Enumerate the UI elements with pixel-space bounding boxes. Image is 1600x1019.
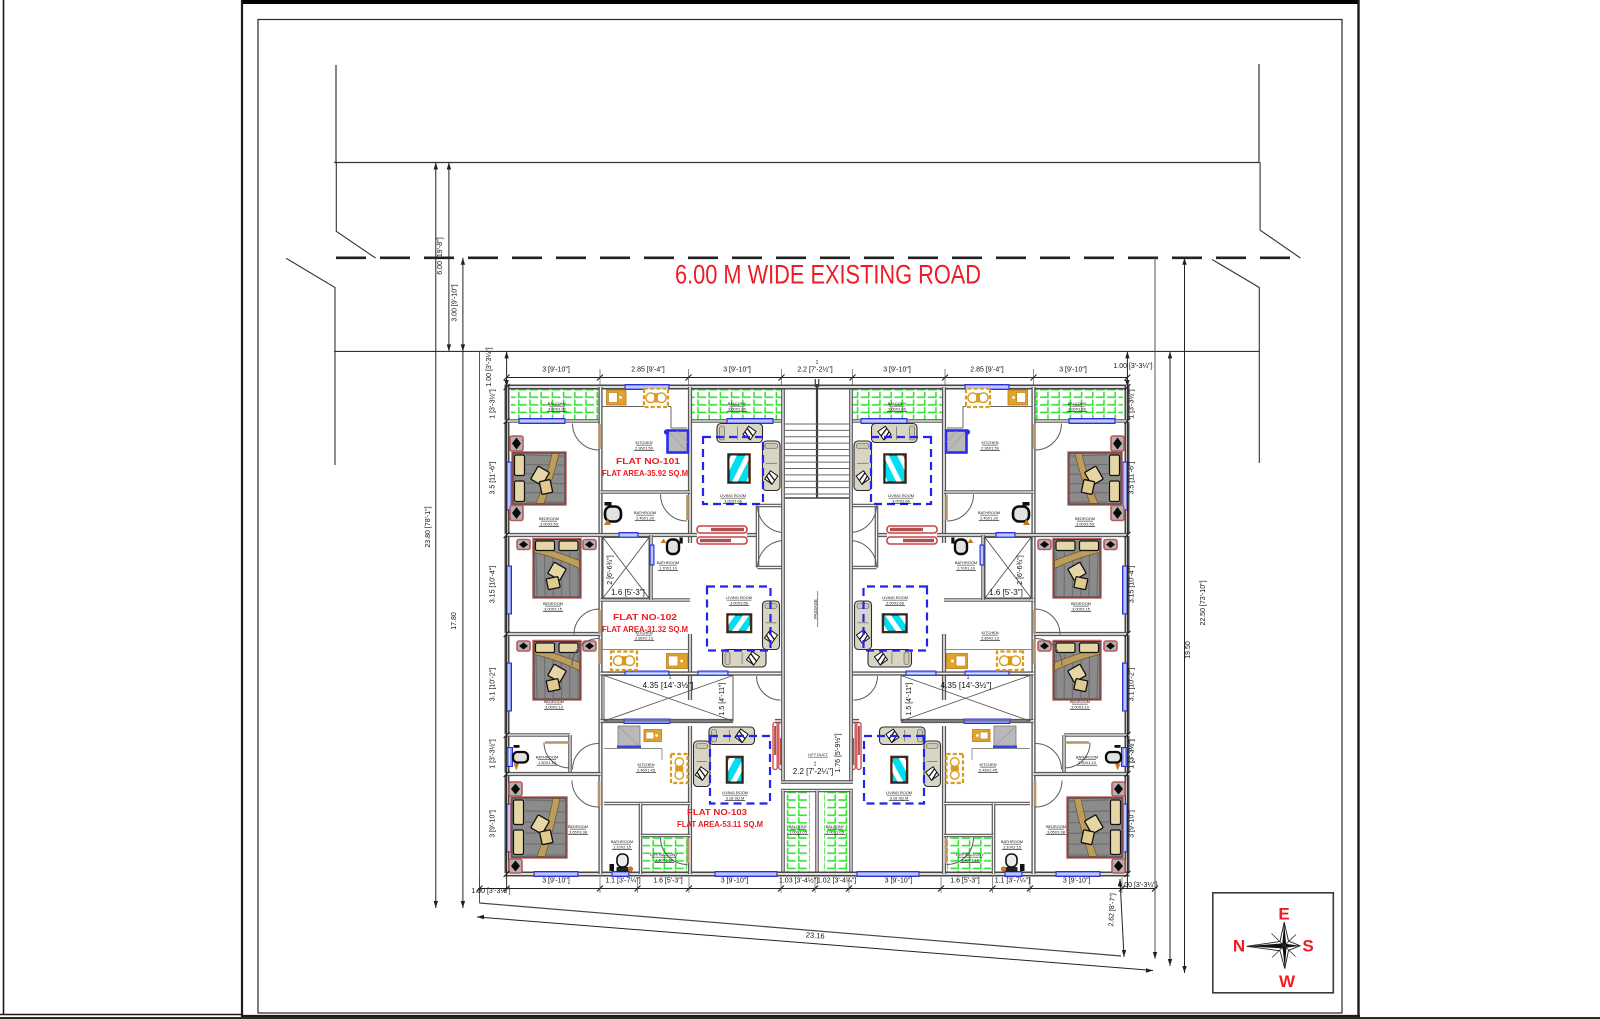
svg-text:BEDROOM: BEDROOM	[1071, 601, 1091, 606]
svg-text:BALCONY: BALCONY	[789, 824, 808, 829]
svg-text:1.76 [5'-9½"]: 1.76 [5'-9½"]	[834, 733, 842, 772]
svg-text:3.00X3.10: 3.00X3.10	[1071, 705, 1090, 710]
svg-text:6.00 [19'-8"]: 6.00 [19'-8"]	[437, 237, 444, 274]
svg-text:2.36X1.50: 2.36X1.50	[635, 446, 654, 451]
svg-text:1.5 [4'-11"]: 1.5 [4'-11"]	[906, 683, 913, 716]
svg-text:1 [3'-3½"]: 1 [3'-3½"]	[489, 739, 497, 769]
svg-text:23.16: 23.16	[805, 930, 824, 940]
svg-text:BATHROOM: BATHROOM	[1001, 839, 1023, 844]
svg-text:23.80 [78'-1"]: 23.80 [78'-1"]	[425, 506, 432, 547]
svg-text:2.86X2.13: 2.86X2.13	[981, 636, 999, 641]
svg-text:1.00X1.05: 1.00X1.05	[826, 830, 844, 835]
svg-text:1: 1	[816, 360, 819, 366]
svg-text:BALCONY: BALCONY	[728, 401, 747, 406]
svg-text:2.86X2.13: 2.86X2.13	[635, 636, 653, 641]
svg-text:3.00X1.00: 3.00X1.00	[548, 407, 567, 412]
svg-text:17.80: 17.80	[451, 612, 458, 630]
svg-text:1.00 [3'-3¼"]: 1.00 [3'-3¼"]	[1113, 363, 1152, 370]
svg-text:KITCHEN: KITCHEN	[981, 440, 998, 445]
svg-text:KITCHEN: KITCHEN	[981, 630, 998, 635]
svg-text:BEDROOM: BEDROOM	[544, 699, 564, 704]
svg-text:DRY BALCONY: DRY BALCONY	[956, 852, 984, 857]
svg-text:BATHROOM: BATHROOM	[955, 560, 977, 565]
svg-text:3 [9'-10"]: 3 [9'-10"]	[1059, 367, 1087, 374]
svg-text:1.50X1.10: 1.50X1.10	[538, 760, 557, 765]
svg-text:E: E	[1278, 905, 1289, 924]
svg-text:PASSAGE: PASSAGE	[813, 599, 818, 619]
svg-text:W: W	[1279, 972, 1296, 991]
svg-text:3.00 [9'-10"]: 3.00 [9'-10"]	[452, 284, 459, 321]
svg-text:FLAT AREA-53.11 SQ.M: FLAT AREA-53.11 SQ.M	[677, 819, 763, 829]
svg-text:FLAT NO-101: FLAT NO-101	[616, 456, 680, 466]
svg-text:2 [6'-6¾"]: 2 [6'-6¾"]	[1017, 555, 1024, 585]
svg-text:3.00X3.66: 3.00X3.66	[724, 499, 742, 504]
svg-text:3 [9'-10"]: 3 [9'-10"]	[542, 367, 570, 374]
svg-text:3.00X3.66: 3.00X3.66	[892, 499, 910, 504]
svg-text:3.1 [10'-2"]: 3.1 [10'-2"]	[1129, 668, 1136, 701]
svg-text:19.50: 19.50	[1185, 641, 1192, 659]
svg-text:3 [9'-10"]: 3 [9'-10"]	[721, 878, 749, 885]
svg-text:3.00X1.00: 3.00X1.00	[888, 407, 907, 412]
svg-text:KITCHEN: KITCHEN	[635, 630, 652, 635]
svg-text:2.2 [7'-2½"]: 2.2 [7'-2½"]	[797, 366, 832, 374]
svg-text:3.15 [10'-4"]: 3.15 [10'-4"]	[490, 566, 497, 603]
svg-text:BATHROOM: BATHROOM	[657, 560, 679, 565]
svg-text:2 [6'-6¾"]: 2 [6'-6¾"]	[607, 555, 614, 585]
svg-text:S: S	[1302, 937, 1313, 956]
svg-text:1.6 [5'-3"]: 1.6 [5'-3"]	[989, 588, 1023, 597]
svg-text:4.35 [14'-3½"]: 4.35 [14'-3½"]	[940, 680, 991, 690]
svg-text:3.00X3.15: 3.00X3.15	[1072, 607, 1090, 612]
svg-text:BATHROOM: BATHROOM	[611, 839, 633, 844]
svg-text:1 [3'-3½"]: 1 [3'-3½"]	[489, 389, 497, 419]
svg-text:3 [9'-10"]: 3 [9'-10"]	[885, 878, 913, 885]
svg-text:3 [9'-10"]: 3 [9'-10"]	[1063, 878, 1091, 885]
svg-text:BALCONY: BALCONY	[1068, 401, 1087, 406]
svg-text:1.00 [3'-3¼"]: 1.00 [3'-3¼"]	[486, 347, 493, 386]
svg-text:3 [9'-10"]: 3 [9'-10"]	[542, 878, 570, 885]
svg-text:3.00X3.53: 3.00X3.53	[1076, 522, 1094, 527]
svg-text:1.6 [5'-3"]: 1.6 [5'-3"]	[653, 878, 683, 885]
svg-text:BEDROOM: BEDROOM	[1075, 516, 1095, 521]
svg-text:2.45X1.20: 2.45X1.20	[636, 516, 655, 521]
svg-text:6.00 M WIDE EXISTING ROAD: 6.00 M WIDE EXISTING ROAD	[675, 260, 981, 290]
svg-text:1.1 [3'-7¼"]: 1.1 [3'-7¼"]	[995, 878, 1030, 885]
svg-text:BEDROOM: BEDROOM	[1046, 824, 1066, 829]
svg-text:1.02 [3'-4¼"]: 1.02 [3'-4¼"]	[817, 878, 856, 885]
svg-text:1.6 [5'-3"]: 1.6 [5'-3"]	[950, 878, 980, 885]
svg-text:3 [9'-10"]: 3 [9'-10"]	[490, 810, 497, 838]
svg-text:3.00X3.66: 3.00X3.66	[886, 601, 904, 606]
svg-text:LIVING ROOM: LIVING ROOM	[882, 595, 908, 600]
svg-text:3 [9'-10"]: 3 [9'-10"]	[1129, 810, 1136, 838]
svg-text:1.70X1.10: 1.70X1.10	[659, 566, 678, 571]
svg-text:FLAT NO-103: FLAT NO-103	[687, 807, 747, 817]
svg-text:2.36X1.50: 2.36X1.50	[981, 446, 1000, 451]
svg-text:BATHROOM: BATHROOM	[536, 755, 558, 760]
svg-text:3 [9'-10"]: 3 [9'-10"]	[723, 367, 751, 374]
svg-text:1.40X1.10: 1.40X1.10	[961, 858, 980, 863]
svg-text:1 [3'-3½"]: 1 [3'-3½"]	[1128, 389, 1136, 419]
svg-text:LIFT DUCT: LIFT DUCT	[808, 752, 828, 757]
svg-text:2.85 [9'-4"]: 2.85 [9'-4"]	[970, 367, 1003, 374]
svg-text:1.40X1.10: 1.40X1.10	[655, 858, 674, 863]
svg-text:2.2 [7'-2¼"]: 2.2 [7'-2¼"]	[793, 767, 833, 776]
svg-text:1.6 [5'-3"]: 1.6 [5'-3"]	[611, 588, 645, 597]
svg-text:KITCHEN: KITCHEN	[635, 440, 652, 445]
svg-text:BALCONY: BALCONY	[548, 401, 567, 406]
svg-text:22.50 [73'-10"]: 22.50 [73'-10"]	[1200, 580, 1207, 625]
svg-text:BALCONY: BALCONY	[888, 401, 907, 406]
svg-text:LIVING ROOM: LIVING ROOM	[720, 493, 746, 498]
svg-text:3.65X3.38: 3.65X3.38	[569, 830, 587, 835]
svg-text:N: N	[1233, 937, 1245, 956]
svg-text:3.5 [11'-6"]: 3.5 [11'-6"]	[1129, 462, 1136, 495]
svg-text:LIVING ROOM: LIVING ROOM	[886, 790, 912, 795]
svg-text:BATHROOM: BATHROOM	[1076, 755, 1098, 760]
svg-text:BATHROOM: BATHROOM	[978, 510, 1000, 515]
svg-text:3.65X3.38: 3.65X3.38	[1047, 830, 1065, 835]
svg-text:BATHROOM: BATHROOM	[634, 510, 656, 515]
svg-text:BEDROOM: BEDROOM	[568, 824, 588, 829]
svg-text:BEDROOM: BEDROOM	[1070, 699, 1090, 704]
svg-text:1.00 [3'-3½"]: 1.00 [3'-3½"]	[471, 887, 510, 895]
svg-text:1.00 [3'-3¼"]: 1.00 [3'-3¼"]	[1118, 882, 1157, 889]
svg-text:1.50X1.10: 1.50X1.10	[1078, 760, 1097, 765]
svg-text:3 [9'-10"]: 3 [9'-10"]	[883, 367, 911, 374]
svg-text:2.45X1.20: 2.45X1.20	[980, 516, 999, 521]
svg-text:FLAT NO-102: FLAT NO-102	[613, 612, 677, 622]
svg-text:1.00X1.05: 1.00X1.05	[789, 830, 807, 835]
svg-text:LIVING ROOM: LIVING ROOM	[722, 790, 748, 795]
svg-text:2.46X1.45: 2.46X1.45	[979, 768, 997, 773]
svg-text:2.85 [9'-4"]: 2.85 [9'-4"]	[631, 367, 664, 374]
svg-text:1 [3'-3½"]: 1 [3'-3½"]	[1128, 739, 1136, 769]
svg-text:3.00X1.00: 3.00X1.00	[728, 407, 747, 412]
svg-text:1.10X2.15: 1.10X2.15	[613, 845, 631, 850]
svg-text:KITCHEN: KITCHEN	[979, 762, 996, 767]
svg-text:1: 1	[669, 675, 672, 681]
svg-text:2.46X1.45: 2.46X1.45	[637, 768, 655, 773]
svg-text:1.70X1.10: 1.70X1.10	[957, 566, 976, 571]
svg-text:1.1 [3'-7¼"]: 1.1 [3'-7¼"]	[605, 878, 640, 885]
svg-text:1.03 [3'-4½"]: 1.03 [3'-4½"]	[779, 877, 818, 885]
svg-text:1: 1	[814, 762, 817, 768]
svg-text:3.1 [10'-2"]: 3.1 [10'-2"]	[490, 668, 497, 701]
svg-text:KITCHEN: KITCHEN	[637, 762, 654, 767]
svg-text:DRY BALCONY: DRY BALCONY	[650, 852, 678, 857]
svg-text:3.00X3.10: 3.00X3.10	[545, 705, 564, 710]
svg-text:BEDROOM: BEDROOM	[539, 516, 559, 521]
svg-text:3.00X3.66: 3.00X3.66	[730, 601, 748, 606]
svg-text:3.15 [10'-4"]: 3.15 [10'-4"]	[1129, 566, 1136, 603]
svg-text:1: 1	[967, 675, 970, 681]
svg-text:LIVING ROOM: LIVING ROOM	[726, 595, 752, 600]
svg-text:3.00X1.00: 3.00X1.00	[1068, 407, 1087, 412]
svg-text:4.35 [14'-3½"]: 4.35 [14'-3½"]	[642, 680, 693, 690]
svg-text:1.5 [4'-11"]: 1.5 [4'-11"]	[719, 683, 726, 716]
svg-text:FLAT AREA-35.92 SQ.M: FLAT AREA-35.92 SQ.M	[602, 468, 688, 478]
svg-text:BEDROOM: BEDROOM	[543, 601, 563, 606]
svg-text:3.18 SQ.M: 3.18 SQ.M	[890, 796, 909, 801]
svg-text:3.5 [11'-6"]: 3.5 [11'-6"]	[490, 462, 497, 495]
svg-text:3.00X3.15: 3.00X3.15	[544, 607, 562, 612]
svg-text:3.00X3.53: 3.00X3.53	[540, 522, 558, 527]
svg-text:3.18 SQ.M: 3.18 SQ.M	[726, 796, 745, 801]
svg-text:LIVING ROOM: LIVING ROOM	[888, 493, 914, 498]
svg-text:1.10X2.15: 1.10X2.15	[1003, 845, 1021, 850]
svg-text:BALCONY: BALCONY	[826, 824, 845, 829]
